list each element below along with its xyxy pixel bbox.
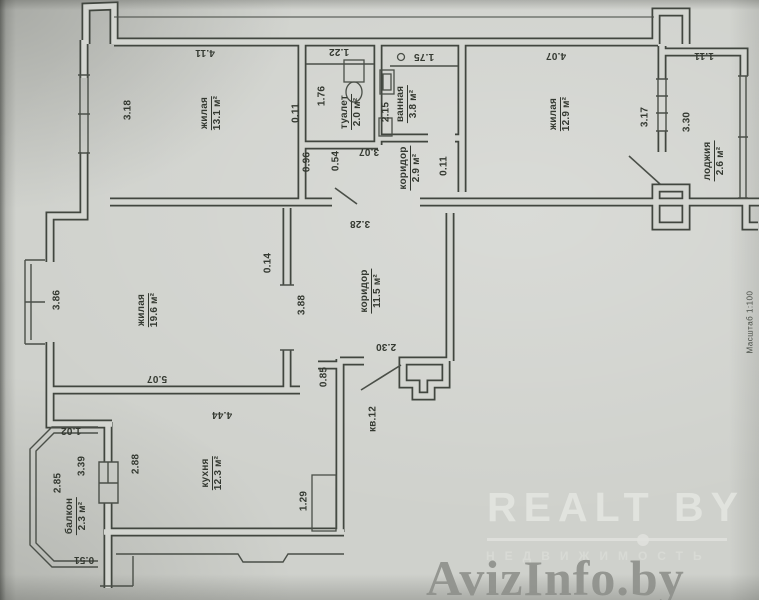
dim-label: 1.75: [414, 50, 434, 62]
dim-label: 3.88: [296, 295, 308, 315]
room-label-loggia: лоджия 2.6 м²: [702, 141, 726, 182]
dim-label: 2.15: [380, 102, 392, 122]
dim-label: 3.07: [359, 145, 379, 157]
door-swing-lines: [335, 156, 660, 390]
room-label-kitchen: кухня 12.3 м²: [200, 456, 224, 490]
apartment-number-label: кв.12: [367, 406, 379, 432]
room-label-toilet: туалет 2.0 м²: [339, 94, 363, 130]
dim-label: 3.30: [681, 112, 693, 132]
dim-label: 2.30: [376, 340, 396, 352]
room-label-balcony: балкон 2.3 м²: [64, 497, 88, 535]
dim-label: 3.39: [76, 456, 88, 476]
room-label-hall-small: коридор 2.9 м²: [398, 145, 422, 190]
room-label-living3: жилая 19.6 м²: [136, 293, 160, 327]
dim-label: 3.86: [51, 290, 63, 310]
dim-label: 1.76: [316, 86, 328, 106]
room-label-living1: жилая 13.1 м²: [199, 96, 223, 130]
dim-label: 1.22: [329, 45, 349, 57]
realt-watermark: REALT BY: [487, 487, 727, 528]
floor-plan-scan: 4.11 1.22 1.75 4.07 1.11 3.18 1.76 0.11 …: [0, 0, 759, 600]
dim-label: 3.18: [122, 100, 134, 120]
room-label-hall: коридор 11.5 м²: [359, 268, 383, 313]
dim-label: 0.11: [290, 103, 302, 123]
dim-label: 0.85: [318, 367, 330, 387]
scale-label: Масштаб 1:100: [746, 291, 755, 354]
room-label-living2: жилая 12.9 м²: [548, 97, 572, 131]
dim-label: 0.14: [262, 253, 274, 273]
dim-label: 3.28: [350, 217, 370, 229]
dim-label: 2.85: [52, 473, 64, 493]
dim-label: 4.07: [546, 49, 566, 61]
room-label-bath: ванная 3.8 м²: [395, 85, 419, 123]
dim-label: 0.96: [301, 152, 313, 172]
dim-label: 4.44: [212, 408, 232, 420]
dim-label: 0.54: [330, 151, 342, 171]
realt-watermark-dot: [637, 534, 649, 546]
dim-label: 1.02: [61, 424, 81, 436]
dim-label: 1.11: [694, 49, 714, 61]
dim-label: 1.29: [298, 491, 310, 511]
vent-symbol: [398, 54, 405, 61]
kitchen-duct: [312, 475, 336, 531]
dim-label: 2.88: [130, 454, 142, 474]
dim-label: 3.17: [639, 107, 651, 127]
avizinfo-watermark: AvizInfo.by: [426, 553, 685, 600]
dim-label: 0.51: [74, 553, 94, 565]
realt-watermark-rule: [487, 538, 727, 541]
dim-label: 5.07: [147, 372, 167, 384]
dim-label: 4.11: [195, 46, 215, 58]
dim-label: 0.11: [438, 156, 450, 176]
